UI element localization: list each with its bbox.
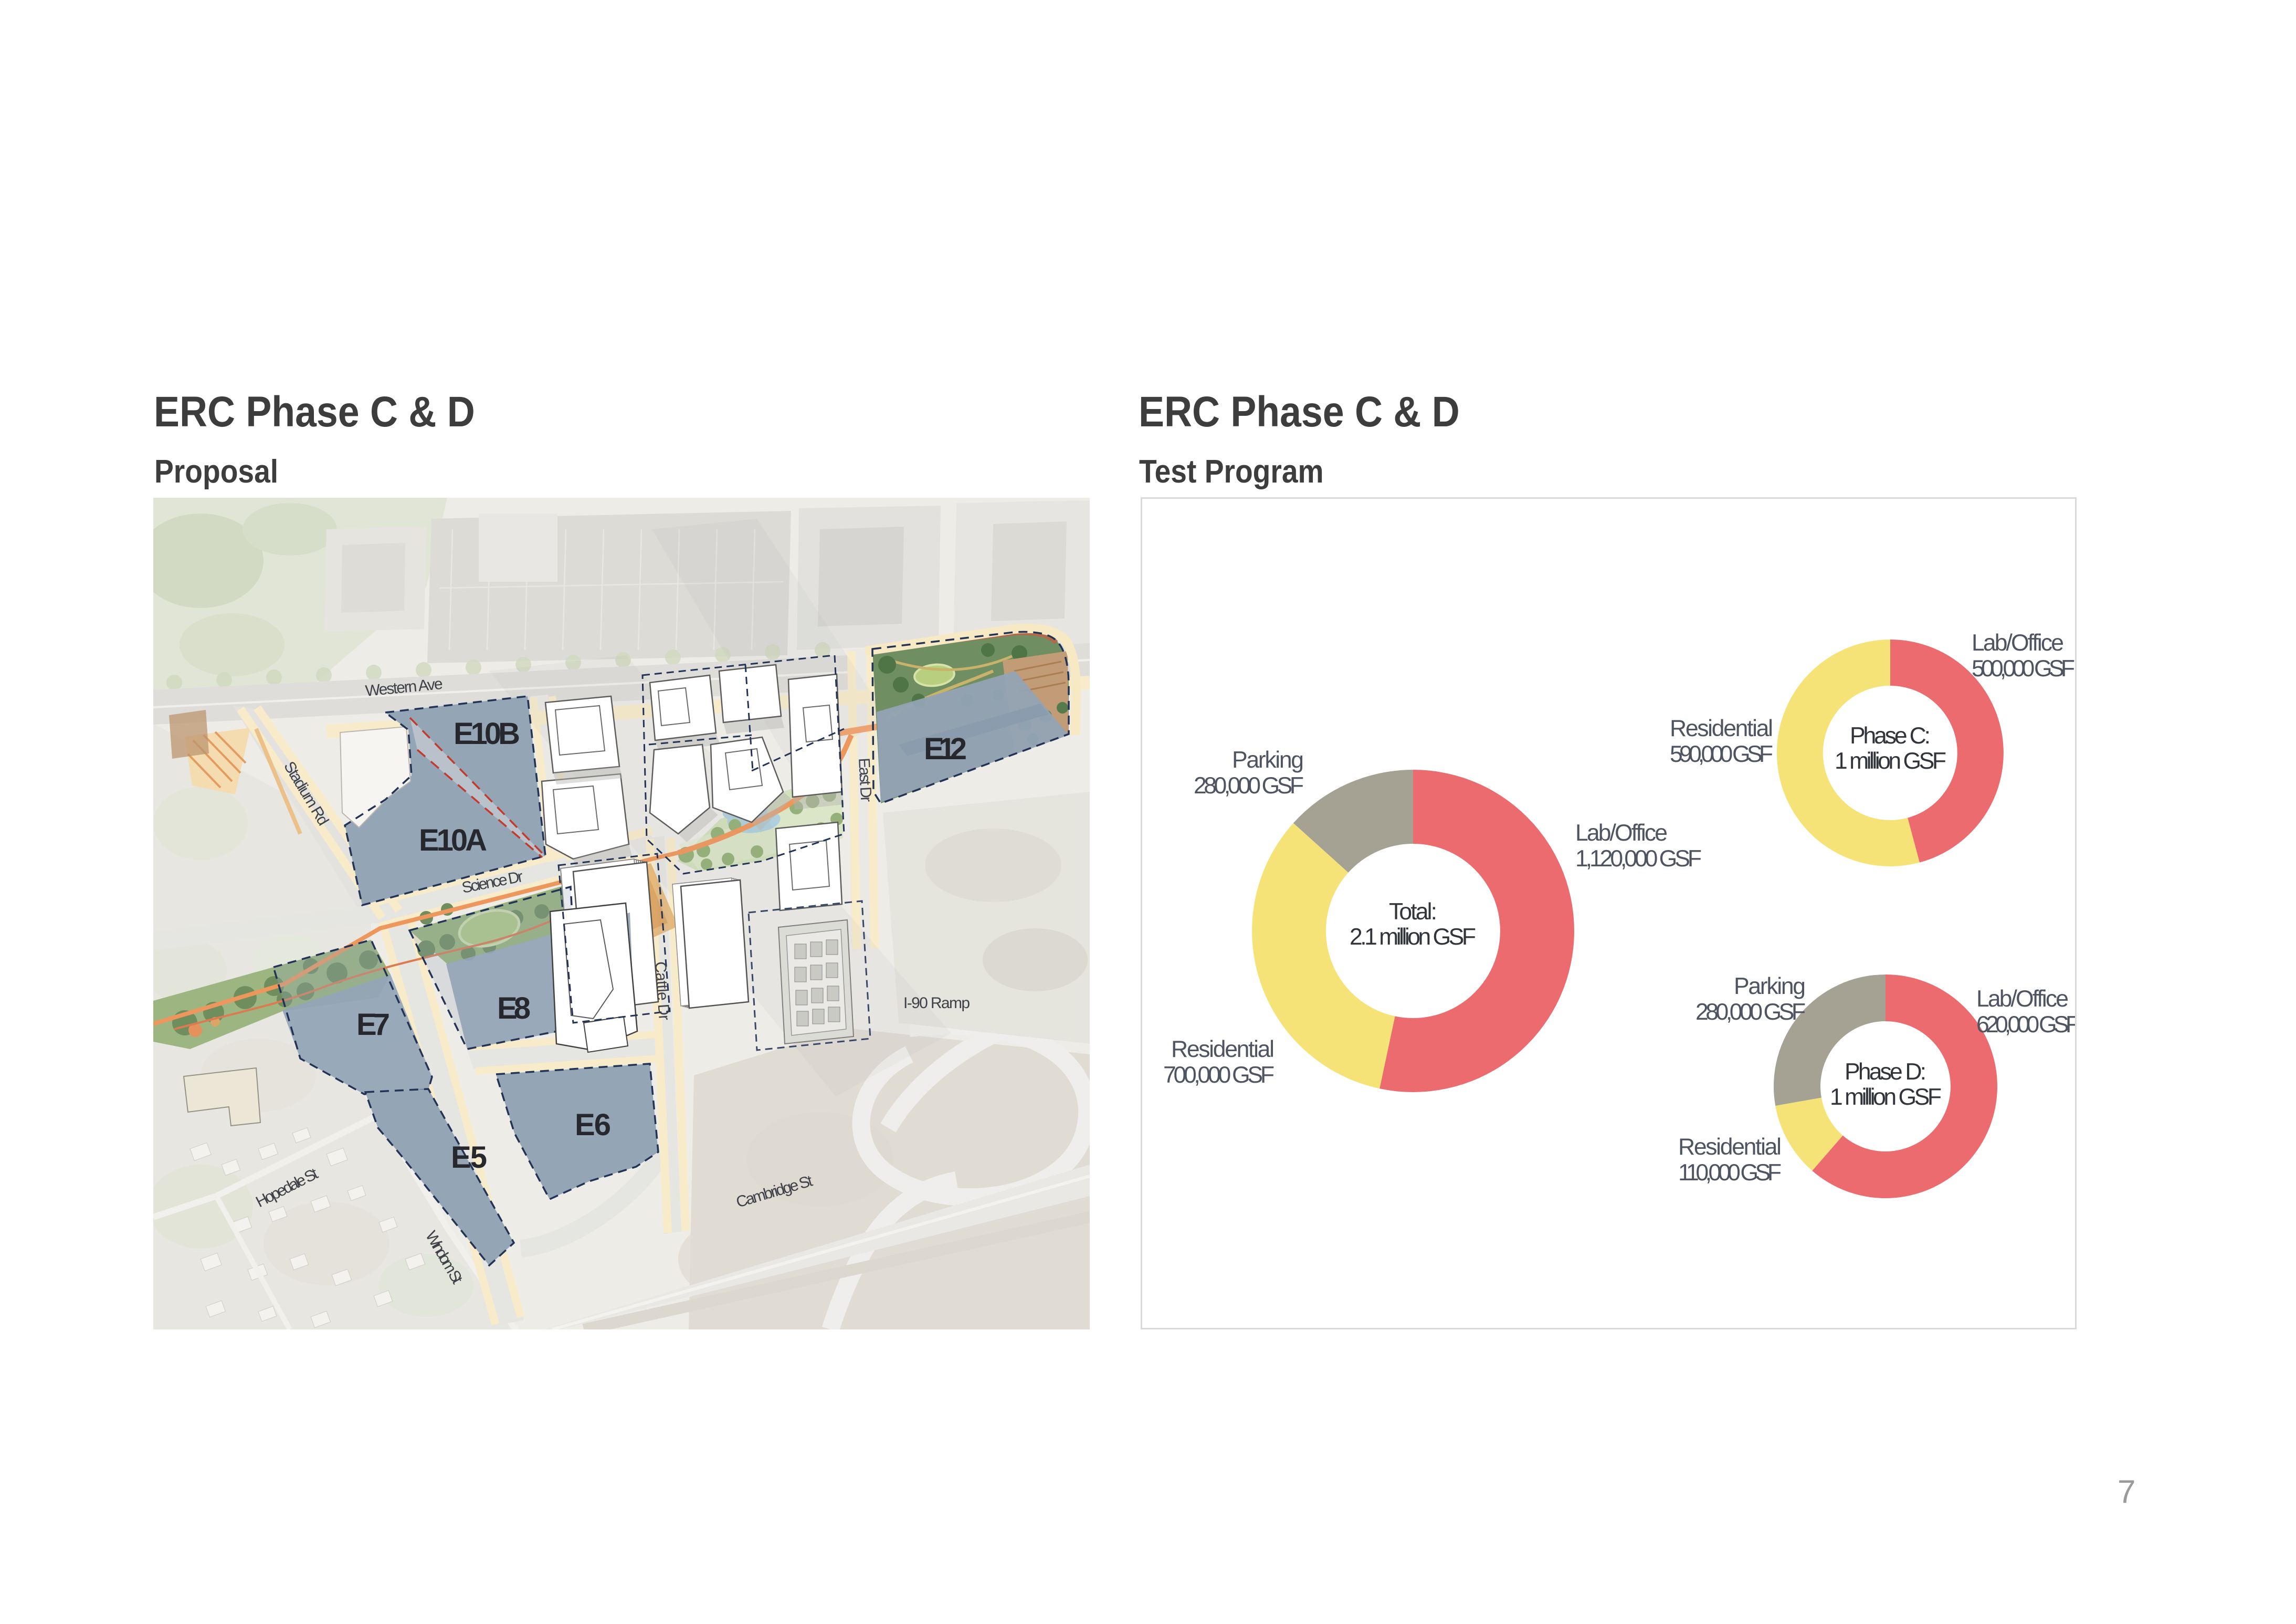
svg-text:Residential: Residential: [1678, 1134, 1782, 1160]
svg-text:E5: E5: [451, 1140, 487, 1175]
svg-text:I-90 Ramp: I-90 Ramp: [903, 994, 970, 1012]
svg-text:E7: E7: [356, 1008, 390, 1042]
svg-text:110,000 GSF: 110,000 GSF: [1678, 1160, 1782, 1186]
svg-text:E10A: E10A: [419, 823, 487, 857]
svg-text:Total:: Total:: [1389, 899, 1437, 925]
svg-text:Parking: Parking: [1232, 747, 1304, 773]
svg-text:280,000 GSF: 280,000 GSF: [1194, 773, 1304, 799]
svg-text:E10B: E10B: [454, 717, 520, 751]
svg-text:700,000 GSF: 700,000 GSF: [1163, 1062, 1275, 1088]
svg-text:E6: E6: [575, 1108, 611, 1142]
svg-text:Phase C:: Phase C:: [1850, 723, 1931, 749]
svg-text:1,120,000 GSF: 1,120,000 GSF: [1575, 846, 1702, 872]
svg-text:280,000 GSF: 280,000 GSF: [1695, 999, 1806, 1025]
svg-text:620,000 GSF: 620,000 GSF: [1976, 1012, 2075, 1038]
svg-text:Residential: Residential: [1670, 716, 1773, 741]
svg-text:1 million GSF: 1 million GSF: [1830, 1084, 1942, 1110]
svg-text:Lab/Office: Lab/Office: [1575, 820, 1668, 846]
svg-text:Lab/Office: Lab/Office: [1976, 986, 2069, 1012]
svg-text:E12: E12: [924, 732, 967, 766]
svg-text:East Dr: East Dr: [855, 758, 875, 803]
svg-text:Phase D:: Phase D:: [1845, 1059, 1926, 1085]
svg-text:2.1 million GSF: 2.1 million GSF: [1350, 924, 1476, 950]
svg-text:Lab/Office: Lab/Office: [1972, 630, 2064, 656]
svg-text:500,000 GSF: 500,000 GSF: [1972, 656, 2075, 682]
svg-text:590,000 GSF: 590,000 GSF: [1670, 741, 1773, 767]
svg-text:Parking: Parking: [1734, 973, 1806, 999]
svg-text:1 million GSF: 1 million GSF: [1835, 748, 1946, 774]
svg-text:E8: E8: [497, 991, 531, 1025]
svg-text:Residential: Residential: [1171, 1036, 1275, 1062]
